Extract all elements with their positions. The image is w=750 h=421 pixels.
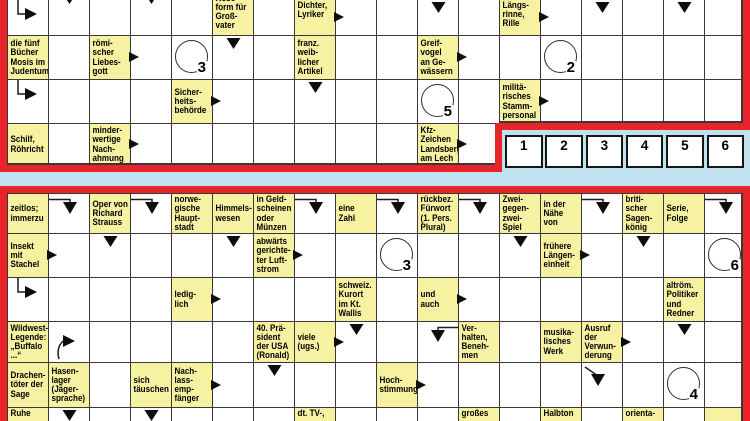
clue-cell: römi-scherLiebes-gott — [89, 35, 130, 79]
red-border-segment — [743, 186, 750, 421]
answer-cell[interactable] — [48, 123, 89, 165]
clue-cell: dt. TV-, — [294, 407, 335, 421]
answer-cell[interactable] — [417, 407, 458, 421]
answer-cell[interactable] — [335, 123, 376, 165]
clue-cell: altröm.PolitikerundRedner — [663, 277, 704, 321]
clue-text: Sage — [11, 390, 46, 399]
answer-cell[interactable] — [212, 233, 253, 277]
answer-cell[interactable] — [540, 362, 581, 407]
arrow-bend-down-icon — [295, 196, 336, 224]
arrow-down-icon — [664, 323, 705, 351]
answer-cell[interactable] — [376, 321, 417, 362]
arrow-down-icon — [90, 235, 131, 263]
circled-number-label: 3 — [402, 259, 412, 273]
clue-text: Wallis — [339, 309, 372, 318]
arrow-curve-right-icon — [50, 332, 91, 360]
clue-cell: Längs-rinne,Rille — [499, 0, 540, 35]
clue-cell: Sicher-heits-behörde — [171, 79, 212, 123]
answer-cell[interactable]: 3 — [171, 35, 212, 79]
clue-cell: schweiz.Kurortim Kt.Wallis — [335, 277, 376, 321]
answer-cell[interactable] — [130, 79, 171, 123]
clue-cell: Wildwest-Legende:„Buffalo...“ — [7, 321, 48, 362]
answer-cell[interactable] — [704, 0, 745, 35]
answer-cell[interactable] — [294, 123, 335, 165]
clue-cell: orienta- — [622, 407, 663, 421]
answer-cell[interactable] — [212, 35, 253, 79]
clue-cell: viele(ugs.) — [294, 321, 335, 362]
solution-box-number: 2 — [560, 138, 568, 153]
solution-box-number: 6 — [721, 138, 729, 153]
answer-cell[interactable] — [704, 79, 745, 123]
answer-cell[interactable] — [458, 79, 499, 123]
arrow-right-icon — [457, 52, 467, 62]
clue-text: Redner — [667, 309, 699, 318]
red-border-segment — [0, 0, 7, 172]
circled-number-label: 5 — [443, 105, 453, 119]
answer-cell[interactable] — [458, 362, 499, 407]
red-border-segment — [495, 123, 750, 130]
arrow-bend-down-icon — [582, 196, 623, 224]
clue-text: großes — [462, 409, 489, 418]
answer-cell[interactable] — [171, 123, 212, 165]
answer-cell[interactable] — [622, 35, 663, 79]
clue-text: Spiel — [503, 223, 529, 232]
arrow-bend-down-icon — [459, 196, 500, 224]
clue-cell: briti-scherSagen-könig — [622, 193, 663, 233]
answer-cell[interactable] — [48, 193, 89, 233]
solution-box[interactable]: 6 — [707, 135, 745, 169]
clue-cell: rückbez.Fürwort(1. Pers.Plural) — [417, 193, 458, 233]
answer-cell[interactable] — [663, 233, 704, 277]
answer-cell[interactable] — [171, 233, 212, 277]
arrow-down-icon — [131, 0, 171, 21]
answer-cell[interactable] — [7, 0, 48, 35]
clue-text: wesen — [216, 214, 252, 223]
arrow-down-icon — [254, 364, 295, 392]
clue-cell: in derNähevon — [540, 193, 581, 233]
answer-cell[interactable] — [663, 407, 704, 421]
arrow-bend-down-icon — [131, 196, 172, 224]
answer-cell[interactable] — [335, 233, 376, 277]
answer-cell[interactable] — [294, 193, 335, 233]
clue-text: immerzu — [11, 214, 44, 223]
clue-cell: Dichter,Lyriker — [294, 0, 335, 35]
answer-cell[interactable] — [253, 277, 294, 321]
answer-cell[interactable] — [89, 362, 130, 407]
clue-cell: Oper vonRichardStrauss — [89, 193, 130, 233]
solution-box-number: 3 — [601, 138, 609, 153]
clue-cell: 40. Prä-sidentder USA(Ronald) — [253, 321, 294, 362]
arrow-bend-right-icon — [8, 80, 49, 108]
clue-text: Strauss — [93, 218, 128, 227]
clue-text: (Ronald) — [257, 351, 290, 360]
answer-cell[interactable] — [622, 277, 663, 321]
answer-cell[interactable]: 4 — [663, 362, 704, 407]
arrow-down-icon — [295, 81, 336, 109]
answer-cell[interactable] — [417, 0, 458, 35]
arrow-down-icon — [418, 1, 459, 29]
answer-cell[interactable] — [212, 407, 253, 421]
clue-text: ahmung — [93, 154, 124, 163]
circled-number-label: 6 — [730, 259, 740, 273]
arrow-bend-right-icon — [8, 278, 49, 306]
answer-cell[interactable] — [212, 123, 253, 165]
clue-cell: ledig-lich — [171, 277, 212, 321]
clue-cell: Kfz-ZeichenLandsbergam Lech — [417, 123, 458, 165]
answer-cell[interactable] — [253, 362, 294, 407]
answer-cell[interactable] — [622, 0, 663, 35]
solution-box[interactable]: 1 — [505, 135, 543, 169]
clue-cell: sichtäuschen — [130, 362, 171, 407]
answer-cell[interactable] — [335, 407, 376, 421]
clue-cell: musika-lischesWerk — [540, 321, 581, 362]
clue-text: Röhricht — [11, 145, 44, 154]
answer-cell[interactable] — [581, 0, 622, 35]
answer-cell[interactable] — [581, 407, 622, 421]
clue-text: auch — [421, 300, 440, 309]
clue-text: Halbton — [544, 409, 574, 418]
circled-number-label: 2 — [566, 61, 576, 75]
answer-cell[interactable] — [48, 407, 89, 421]
clue-text: vater — [216, 21, 247, 30]
arrow-bend-down-icon — [49, 196, 90, 224]
circled-number-label: 4 — [689, 388, 699, 402]
clue-cell: Greif-vogelan Ge-wässern — [417, 35, 458, 79]
arrow-bend-down-icon — [377, 196, 418, 224]
answer-cell[interactable] — [253, 407, 294, 421]
answer-cell[interactable] — [335, 362, 376, 407]
answer-cell[interactable] — [663, 0, 704, 35]
clue-cell: in Geld-scheinenoderMünzen — [253, 193, 294, 233]
clue-text: sprache) — [52, 394, 86, 403]
answer-cell[interactable] — [499, 35, 540, 79]
clue-text: Ruhe — [11, 409, 31, 418]
answer-cell[interactable] — [48, 79, 89, 123]
arrow-bend-right-icon — [8, 0, 49, 28]
clue-text: strom — [257, 265, 291, 274]
clue-text: Münzen — [257, 223, 292, 232]
solution-box[interactable]: 5 — [666, 135, 704, 169]
arrow-right-icon — [457, 139, 467, 149]
answer-cell[interactable] — [253, 123, 294, 165]
answer-cell[interactable] — [704, 35, 745, 79]
clue-text: Stachel — [11, 260, 40, 269]
answer-cell[interactable] — [376, 79, 417, 123]
answer-cell[interactable] — [294, 79, 335, 123]
answer-cell[interactable]: 2 — [540, 35, 581, 79]
clue-text: orienta- — [626, 409, 656, 418]
clue-text: stimmung — [380, 385, 419, 394]
answer-cell[interactable] — [581, 193, 622, 233]
answer-cell[interactable] — [130, 233, 171, 277]
clue-text: ...“ — [11, 351, 49, 360]
circled-number: 6 — [708, 238, 741, 271]
clue-cell: Ver-halten,Beneh-men — [458, 321, 499, 362]
answer-cell[interactable] — [663, 35, 704, 79]
circled-number-label: 3 — [197, 61, 207, 75]
answer-cell[interactable] — [89, 79, 130, 123]
clue-text: täuschen — [134, 385, 169, 394]
clue-text: Folge — [667, 214, 689, 223]
clue-text: Rille — [503, 19, 529, 28]
answer-cell[interactable]: 6 — [704, 233, 745, 277]
clue-text: behörde — [175, 106, 207, 115]
clue-text: Plural) — [421, 223, 454, 232]
red-border-segment — [495, 123, 502, 172]
clue-cell: zeitlos;immerzu — [7, 193, 48, 233]
answer-cell[interactable] — [458, 0, 499, 35]
answer-cell[interactable] — [130, 321, 171, 362]
circled-number: 3 — [175, 40, 208, 73]
arrow-down-icon — [49, 0, 89, 21]
circled-number: 2 — [544, 40, 577, 73]
clue-cell: Halbton — [540, 407, 581, 421]
arrow-right-icon — [129, 52, 139, 62]
clue-cell: frühereLängen-einheit — [540, 233, 581, 277]
clue-text: einheit — [544, 260, 575, 269]
clue-text: men — [462, 351, 489, 360]
answer-cell[interactable] — [130, 193, 171, 233]
answer-cell[interactable] — [48, 0, 89, 35]
arrow-down-icon — [213, 37, 254, 65]
clue-text: könig — [626, 223, 653, 232]
clue-cell: Schilf,Röhricht — [7, 123, 48, 165]
answer-cell[interactable] — [622, 233, 663, 277]
circled-number: 3 — [380, 238, 413, 271]
answer-cell[interactable] — [499, 233, 540, 277]
answer-cell[interactable] — [581, 35, 622, 79]
clue-cell: Hoch-stimmung — [376, 362, 417, 407]
answer-cell[interactable] — [7, 79, 48, 123]
clue-cell: Drachen-töter derSage — [7, 362, 48, 407]
arrow-down-icon — [213, 235, 254, 263]
arrow-right-icon — [539, 96, 549, 106]
arrow-down-icon — [500, 235, 541, 263]
answer-cell[interactable] — [499, 407, 540, 421]
answer-cell[interactable] — [253, 79, 294, 123]
clue-text: Werk — [544, 347, 574, 356]
clue-cell: undauch — [417, 277, 458, 321]
arrow-right-icon — [539, 12, 549, 22]
clue-cell: InsektmitStachel — [7, 233, 48, 277]
answer-cell[interactable] — [376, 277, 417, 321]
answer-cell[interactable] — [171, 321, 212, 362]
circled-number: 4 — [667, 367, 700, 400]
arrow-bend-down-icon — [705, 196, 746, 224]
clue-text: wässern — [421, 67, 453, 76]
answer-cell[interactable] — [171, 0, 212, 35]
clue-text: Zahl — [339, 214, 356, 223]
arrow-right-icon — [211, 294, 221, 304]
answer-cell[interactable] — [89, 407, 130, 421]
answer-cell[interactable] — [704, 277, 745, 321]
clue-cell: AusrufderVerwun-derung — [581, 321, 622, 362]
arrow-right-icon — [334, 12, 344, 22]
answer-cell[interactable] — [376, 123, 417, 165]
answer-cell[interactable] — [130, 0, 171, 35]
answer-cell[interactable] — [335, 79, 376, 123]
clue-text: von — [544, 218, 566, 227]
arrow-right-icon — [580, 250, 590, 260]
answer-cell[interactable] — [540, 277, 581, 321]
answer-cell[interactable] — [89, 0, 130, 35]
clue-text: derung — [585, 351, 616, 360]
answer-cell[interactable] — [499, 362, 540, 407]
answer-cell[interactable] — [89, 233, 130, 277]
answer-cell[interactable] — [376, 193, 417, 233]
answer-cell[interactable] — [581, 79, 622, 123]
clue-text: lich — [175, 300, 196, 309]
clue-cell: Ruhe — [7, 407, 48, 421]
clue-cell: abwärtsgerichte-ter Luft-strom — [253, 233, 294, 277]
arrow-diagonal-down-icon — [582, 365, 623, 393]
clue-text: Lyriker — [298, 10, 328, 19]
answer-cell[interactable] — [417, 321, 458, 362]
answer-cell[interactable] — [704, 321, 745, 362]
arrow-right-icon — [457, 294, 467, 304]
clue-cell — [704, 407, 745, 421]
clue-text: Judentum — [11, 67, 50, 76]
answer-cell[interactable] — [458, 193, 499, 233]
clue-cell: franz.weib-licherArtikel — [294, 35, 335, 79]
answer-cell[interactable] — [704, 362, 745, 407]
answer-cell[interactable]: 5 — [417, 79, 458, 123]
answer-cell[interactable] — [48, 277, 89, 321]
arrow-down-icon — [664, 1, 705, 29]
answer-cell[interactable] — [48, 321, 89, 362]
arrow-right-icon — [293, 250, 303, 260]
answer-cell[interactable] — [335, 35, 376, 79]
clue-text: personal — [503, 111, 537, 120]
clue-text: Artikel — [298, 67, 323, 76]
clue-cell: Himmels-wesen — [212, 193, 253, 233]
arrow-right-icon — [211, 380, 221, 390]
solution-box[interactable]: 3 — [586, 135, 624, 169]
arrow-right-icon — [47, 250, 57, 260]
clue-cell: militä-rischesStamm-personal — [499, 79, 540, 123]
clue-text: fänger — [175, 394, 200, 403]
arrow-down-icon — [49, 409, 90, 421]
arrow-down-icon — [131, 409, 172, 421]
answer-cell[interactable] — [663, 321, 704, 362]
clue-text: dt. TV-, — [298, 409, 325, 418]
answer-cell[interactable] — [376, 0, 417, 35]
clue-cell: Kose-form fürGroß-vater — [212, 0, 253, 35]
red-border-segment — [0, 186, 7, 421]
solution-box-number: 1 — [520, 138, 528, 153]
answer-cell[interactable] — [663, 79, 704, 123]
clue-cell: norwe-gischeHaupt-stadt — [171, 193, 212, 233]
clue-text: gott — [93, 67, 121, 76]
answer-cell[interactable] — [294, 362, 335, 407]
answer-cell[interactable] — [622, 362, 663, 407]
answer-cell[interactable] — [130, 277, 171, 321]
answer-cell[interactable] — [499, 277, 540, 321]
answer-cell[interactable] — [130, 407, 171, 421]
clue-cell: die fünfBücherMosis imJudentum — [7, 35, 48, 79]
answer-cell[interactable] — [417, 233, 458, 277]
answer-cell[interactable] — [253, 0, 294, 35]
answer-cell[interactable] — [253, 35, 294, 79]
answer-cell[interactable] — [704, 193, 745, 233]
arrow-down-icon — [623, 235, 664, 263]
answer-cell[interactable] — [7, 277, 48, 321]
clue-cell: minder-wertigeNach-ahmung — [89, 123, 130, 165]
answer-cell[interactable] — [581, 362, 622, 407]
crossword-puzzle-page: Kose-form fürGroß-vaterDichter,LyrikerLä… — [0, 0, 750, 421]
red-border-segment — [0, 186, 750, 193]
answer-cell[interactable] — [376, 407, 417, 421]
clue-cell: eineZahl — [335, 193, 376, 233]
arrow-down-icon — [582, 1, 623, 29]
arrow-right-icon — [416, 380, 426, 390]
answer-cell[interactable] — [581, 277, 622, 321]
red-border-segment — [0, 165, 502, 172]
answer-cell[interactable] — [458, 233, 499, 277]
clue-cell: Zwei-gegen-zwei-Spiel — [499, 193, 540, 233]
arrow-right-icon — [129, 139, 139, 149]
clue-cell: großes — [458, 407, 499, 421]
answer-cell[interactable] — [376, 35, 417, 79]
solution-box[interactable]: 2 — [545, 135, 583, 169]
solution-box-number: 4 — [641, 138, 649, 153]
clue-cell: Serie,Folge — [663, 193, 704, 233]
clue-text: stadt — [175, 223, 201, 232]
arrow-right-icon — [211, 96, 221, 106]
arrow-bend-down-icon — [418, 324, 459, 352]
answer-cell[interactable] — [294, 277, 335, 321]
answer-cell[interactable] — [48, 35, 89, 79]
circled-number: 5 — [421, 84, 454, 117]
red-border-segment — [743, 0, 750, 130]
solution-box-number: 5 — [681, 138, 689, 153]
clue-text: (ugs.) — [298, 342, 320, 351]
clue-cell: Hasen-lager(Jäger-sprache) — [48, 362, 89, 407]
clue-cell: Nach-lass-emp-fänger — [171, 362, 212, 407]
answer-cell[interactable] — [499, 321, 540, 362]
answer-cell[interactable] — [171, 407, 212, 421]
solution-box[interactable]: 4 — [626, 135, 664, 169]
answer-cell[interactable] — [212, 321, 253, 362]
arrow-right-icon — [334, 337, 344, 347]
answer-cell[interactable] — [89, 277, 130, 321]
answer-cell[interactable]: 3 — [376, 233, 417, 277]
answer-cell[interactable] — [622, 79, 663, 123]
answer-cell[interactable] — [89, 321, 130, 362]
arrow-right-icon — [621, 337, 631, 347]
clue-text: am Lech — [421, 154, 462, 163]
